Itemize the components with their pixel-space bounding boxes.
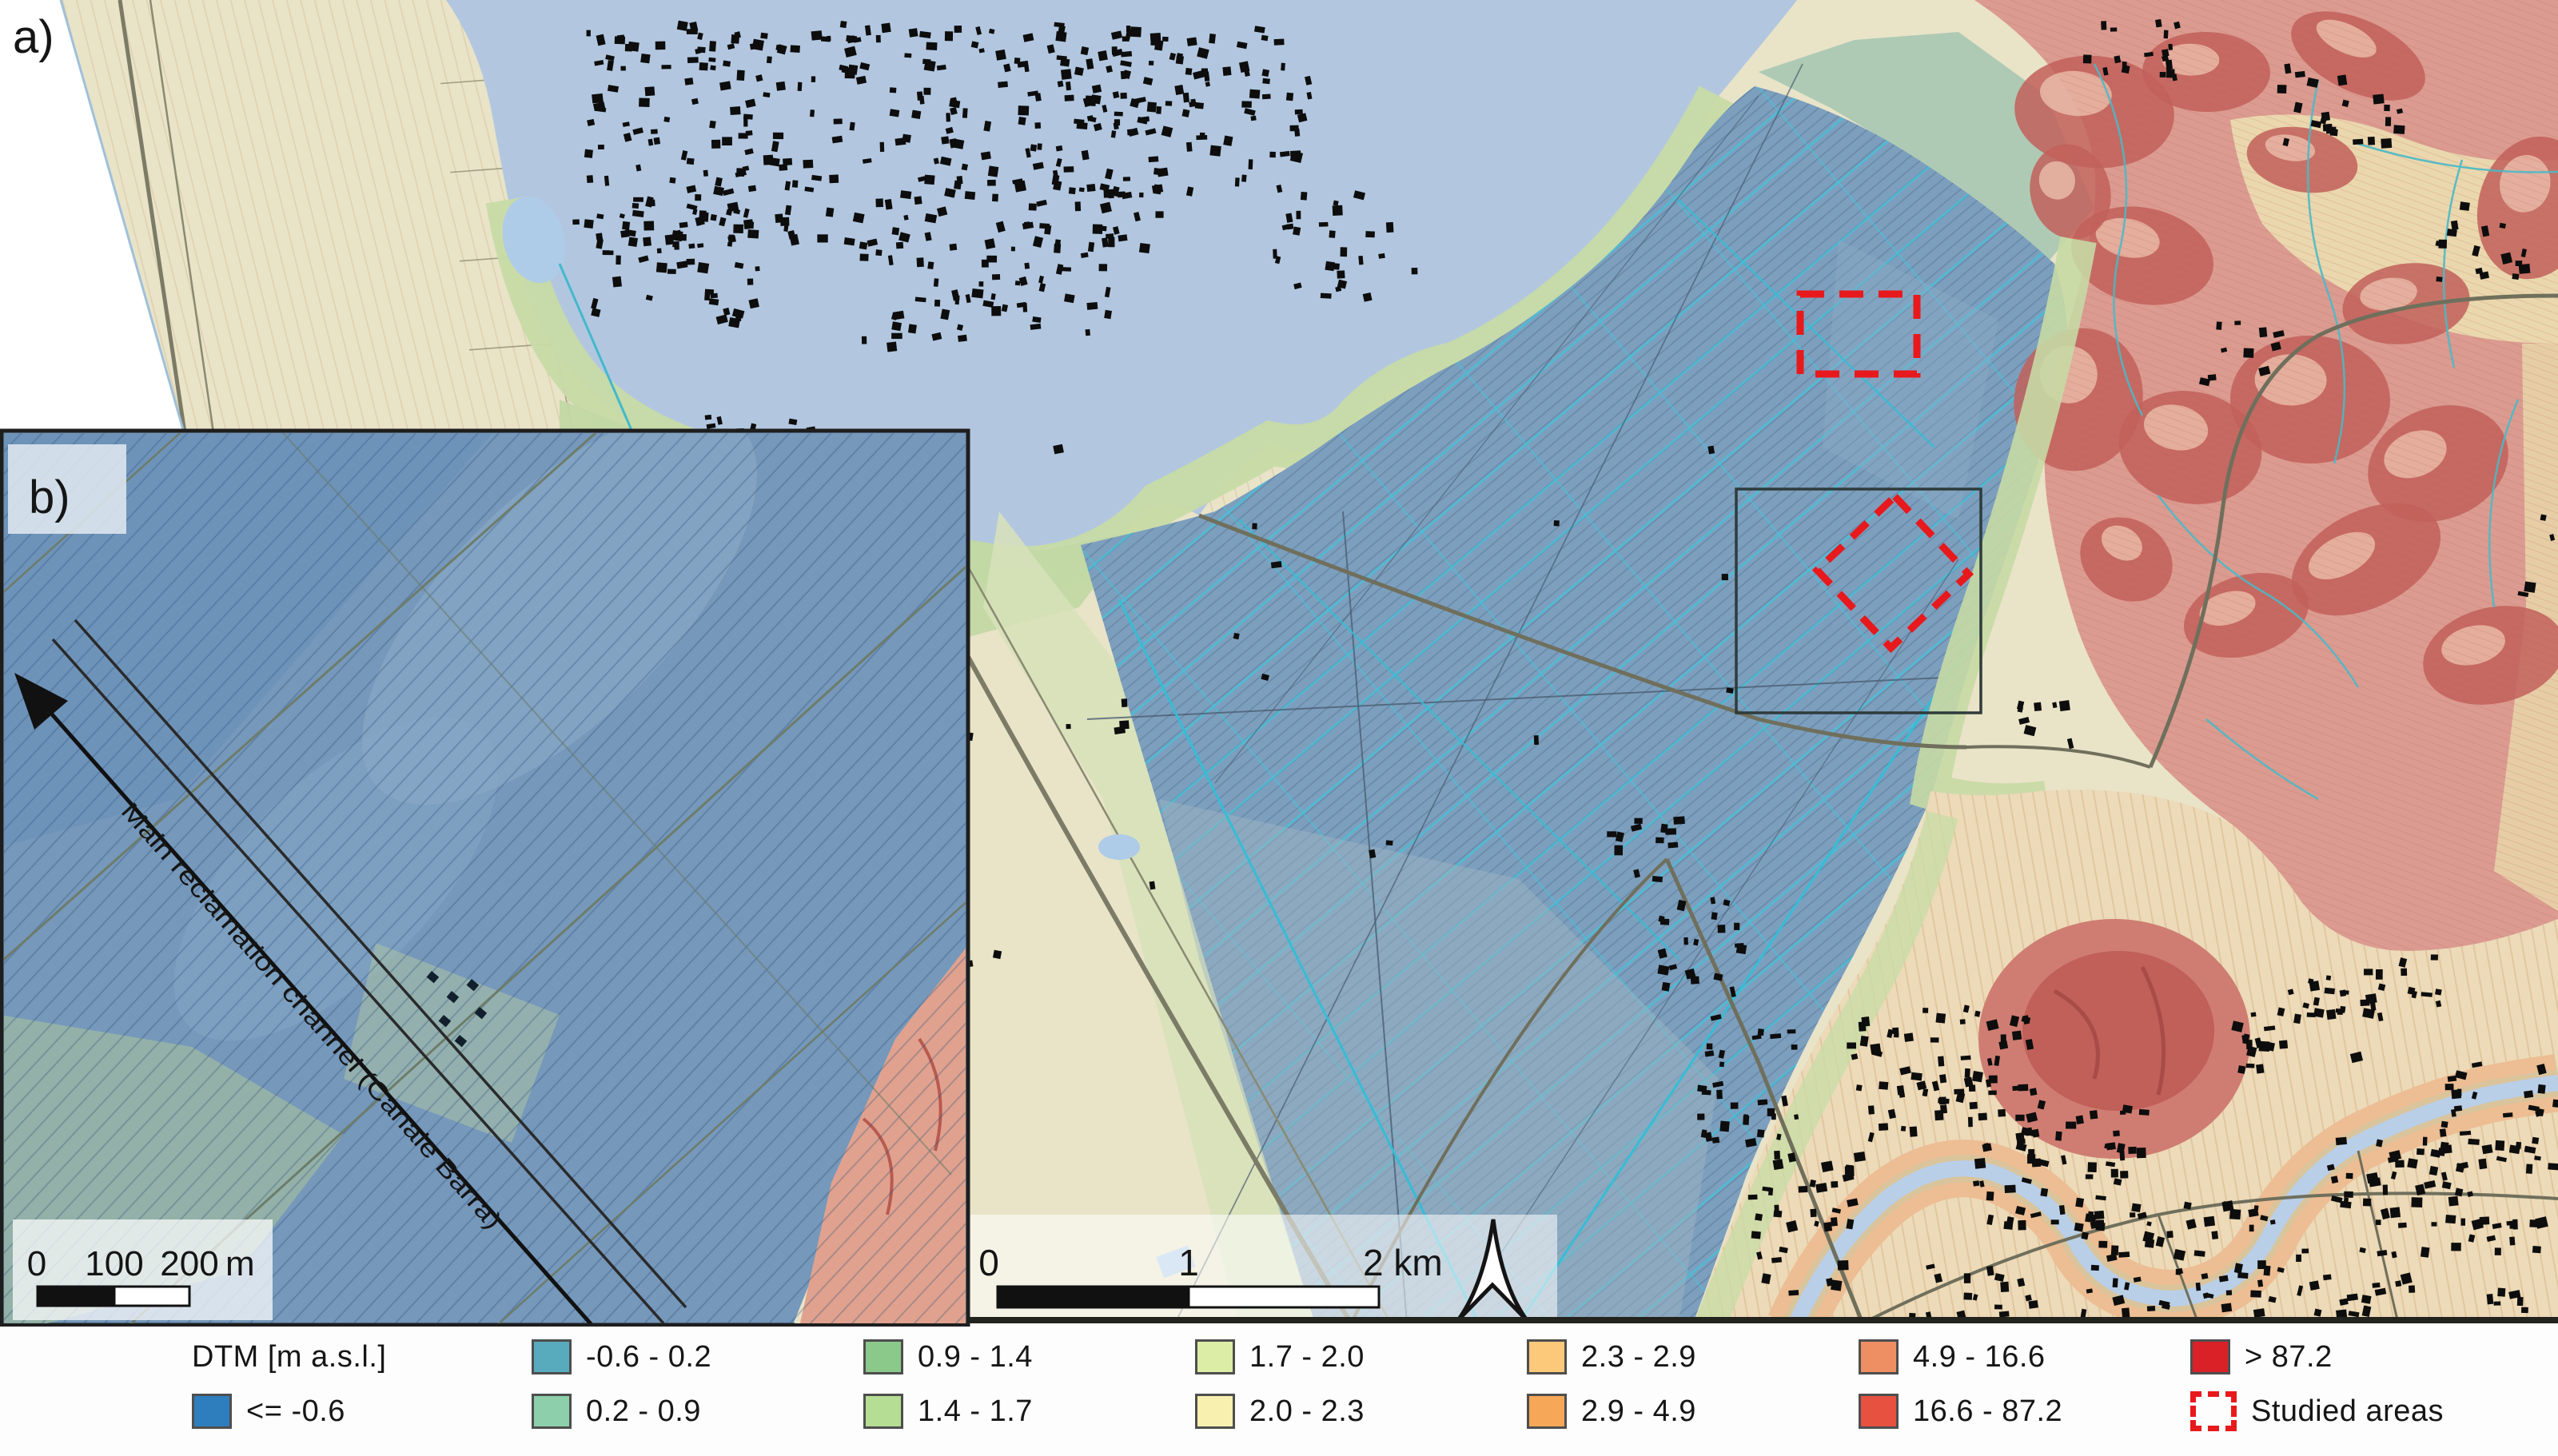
main-scalebar-tick-0: 0 [978, 1242, 999, 1283]
legend-item: 2.3 - 2.9 [1527, 1333, 1696, 1381]
inset-map: Main reclamation channel (Canale Barra) … [0, 348, 970, 1327]
legend-item-label: <= -0.6 [246, 1394, 345, 1429]
figure-stage: 0 1 2 km [0, 0, 2558, 1456]
dtm-map: 0 1 2 km [0, 0, 2558, 1456]
legend-item-label: Studied areas [2251, 1394, 2444, 1429]
legend-swatch-icon [1527, 1394, 1567, 1429]
legend-item: 2.9 - 4.9 [1527, 1387, 1696, 1435]
inset-scalebar-unit: m [225, 1244, 255, 1283]
legend-item: 1.7 - 2.0 [1195, 1333, 1365, 1381]
legend-swatch-icon [1527, 1339, 1567, 1374]
panel-a-label: a) [13, 11, 54, 63]
legend-swatch-icon [1195, 1339, 1235, 1374]
legend-item-label: 2.9 - 4.9 [1581, 1394, 1696, 1429]
legend-item: 4.9 - 16.6 [1859, 1333, 2062, 1381]
legend-item: > 87.2 [2190, 1333, 2444, 1381]
legend-swatch-icon [1859, 1339, 1899, 1374]
legend-swatch-icon [1195, 1394, 1235, 1429]
dtm-legend: DTM [m a.s.l.]<= -0.6-0.6 - 0.20.2 - 0.9… [0, 1327, 2558, 1456]
legend-item: <= -0.6 [192, 1387, 386, 1435]
legend-item: 0.9 - 1.4 [863, 1333, 1033, 1381]
main-scalebar: 0 1 2 km [961, 1215, 1557, 1320]
inset-scalebar-tick-100: 100 [85, 1244, 143, 1283]
legend-column: 0.9 - 1.41.4 - 1.7 [863, 1327, 1033, 1435]
legend-column: > 87.2Studied areas [2190, 1327, 2444, 1435]
legend-item: 16.6 - 87.2 [1859, 1387, 2062, 1435]
legend-item-label: 2.3 - 2.9 [1581, 1340, 1696, 1374]
legend-column: DTM [m a.s.l.]<= -0.6 [192, 1327, 386, 1435]
legend-column: 1.7 - 2.02.0 - 2.3 [1195, 1327, 1365, 1435]
legend-item-label: 0.2 - 0.9 [586, 1394, 701, 1429]
legend-item: 2.0 - 2.3 [1195, 1387, 1365, 1435]
inset-scalebar: 0 100 200 m [13, 1219, 273, 1320]
legend-swatch-icon [532, 1394, 572, 1429]
legend-swatch-icon [863, 1394, 903, 1429]
panel-b-label: b) [29, 471, 70, 523]
inset-scalebar-tick-0: 0 [27, 1244, 46, 1283]
legend-column: 4.9 - 16.616.6 - 87.2 [1859, 1327, 2062, 1435]
legend-swatch-icon [532, 1339, 572, 1374]
legend-item-studied-areas: Studied areas [2190, 1387, 2444, 1435]
legend-item: -0.6 - 0.2 [532, 1333, 711, 1381]
legend-item-label: > 87.2 [2245, 1340, 2333, 1374]
legend-item-label: 16.6 - 87.2 [1913, 1394, 2062, 1429]
legend-column: -0.6 - 0.20.2 - 0.9 [532, 1327, 711, 1435]
legend-item: 1.4 - 1.7 [863, 1387, 1033, 1435]
legend-item-label: 2.0 - 2.3 [1249, 1394, 1365, 1429]
main-scalebar-tick-2: 2 km [1363, 1242, 1443, 1283]
main-scalebar-tick-1: 1 [1178, 1242, 1199, 1283]
legend-item-label: 4.9 - 16.6 [1913, 1340, 2046, 1374]
legend-item-label: 0.9 - 1.4 [918, 1340, 1033, 1374]
legend-swatch-icon [2190, 1339, 2230, 1374]
legend-title: DTM [m a.s.l.] [192, 1340, 386, 1374]
legend-column: 2.3 - 2.92.9 - 4.9 [1527, 1327, 1696, 1435]
legend-swatch-icon [863, 1339, 903, 1374]
studied-areas-swatch-icon [2190, 1391, 2237, 1431]
legend-swatch-icon [1859, 1394, 1899, 1429]
legend-item: 0.2 - 0.9 [532, 1387, 711, 1435]
legend-swatch-icon [192, 1394, 232, 1429]
inset-scalebar-tick-200: 200 [160, 1244, 218, 1283]
legend-item-label: -0.6 - 0.2 [586, 1340, 711, 1374]
legend-item-label: 1.7 - 2.0 [1249, 1340, 1365, 1374]
legend-item-label: 1.4 - 1.7 [918, 1394, 1033, 1429]
